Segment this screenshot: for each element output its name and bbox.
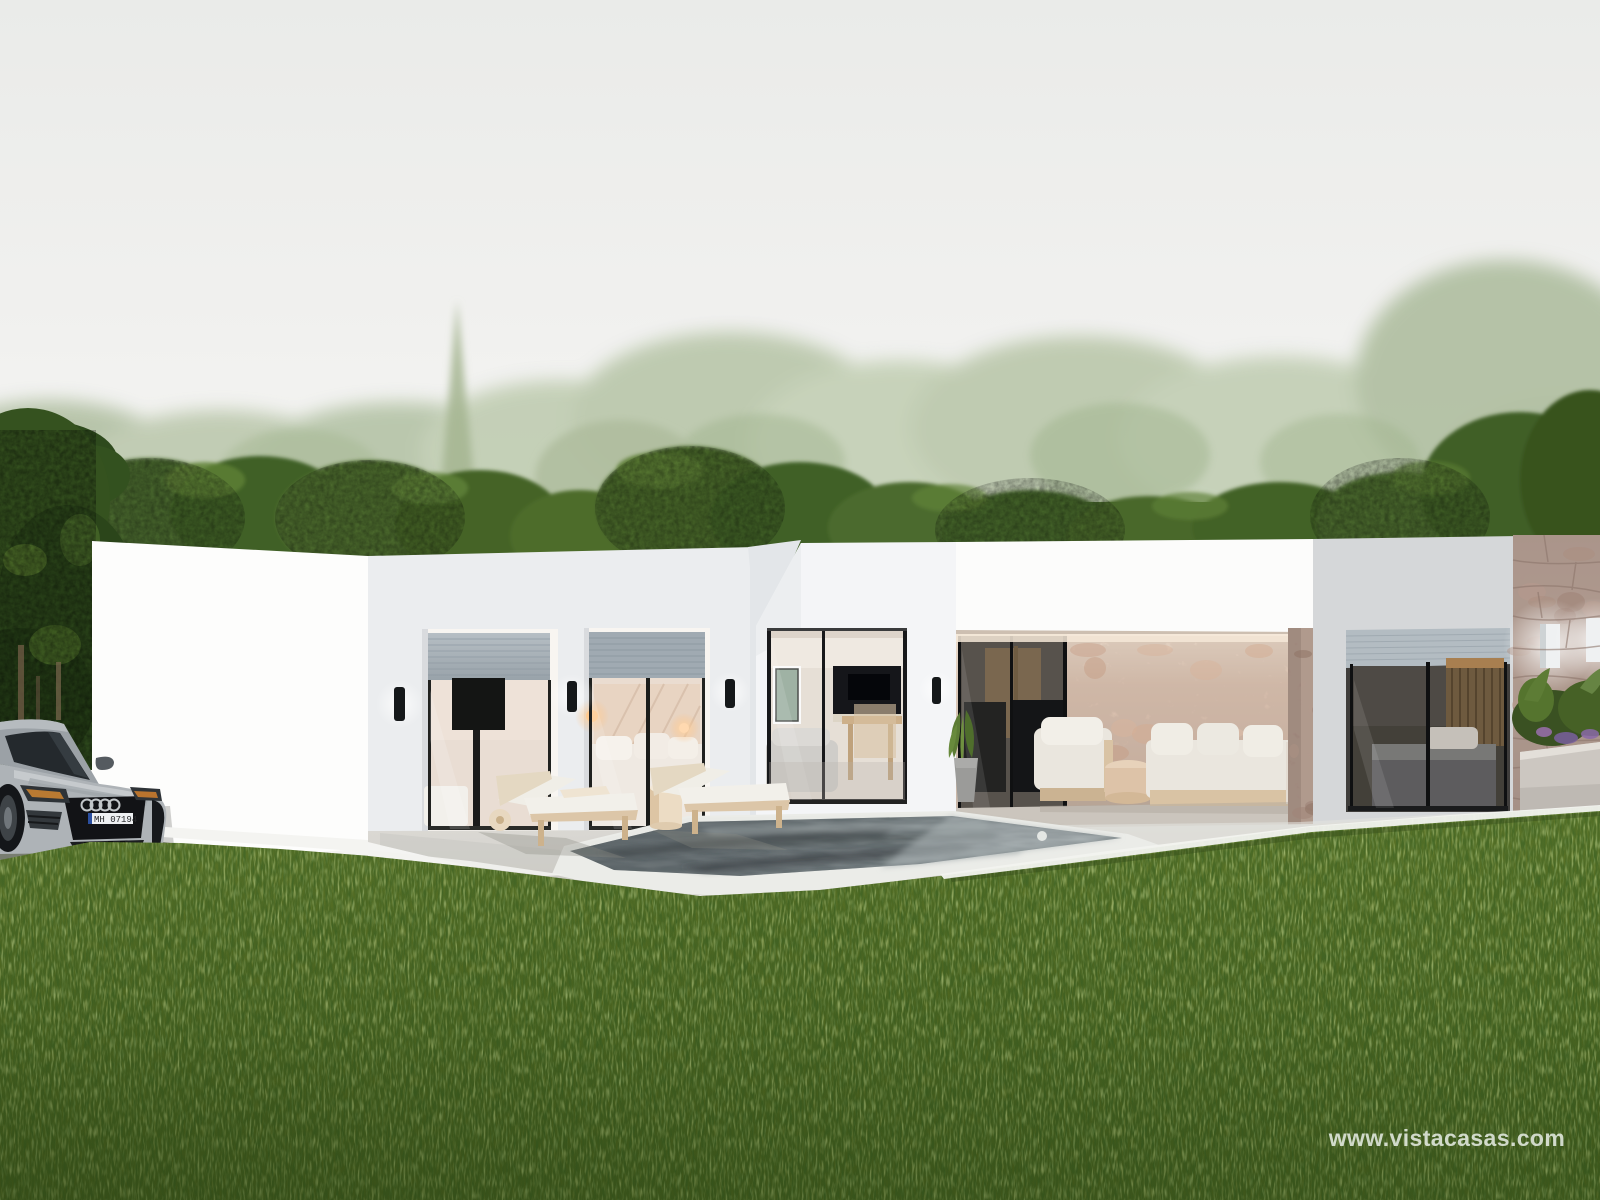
svg-text:MH 07194: MH 07194 [94,815,137,825]
svg-text:www.vistacasas.com: www.vistacasas.com [1328,1125,1565,1151]
